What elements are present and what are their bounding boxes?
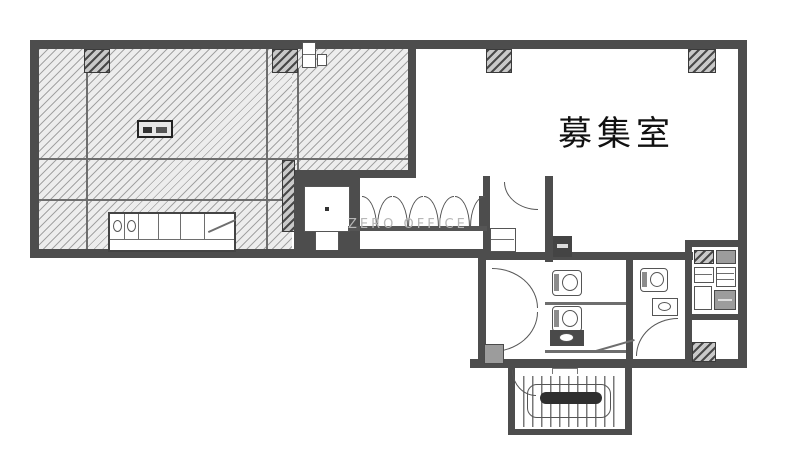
stair-wall-bottom <box>508 429 632 435</box>
sink-fixture-wc <box>652 298 678 316</box>
counter-div-1 <box>124 214 125 239</box>
plan-label-box <box>137 120 173 138</box>
floor-plan: 募集室 ZERO OFFICE <box>0 0 787 457</box>
wall-stall-divider <box>626 258 633 360</box>
partition-line-h2 <box>39 199 292 201</box>
wall-block-top <box>478 252 693 260</box>
column-3 <box>486 49 512 73</box>
sink-knob-2 <box>127 220 136 232</box>
sink-knob-1 <box>113 220 122 232</box>
toilet-fixture-1 <box>552 270 582 296</box>
pipe-space-top-small <box>317 54 327 66</box>
elevator-door <box>315 232 339 250</box>
wall-stall-bottom <box>545 350 626 353</box>
kitchenette-box-3 <box>694 267 714 283</box>
stair-wall-right <box>625 368 632 434</box>
counter-div-3 <box>158 214 159 239</box>
wall-room2-right <box>545 176 553 262</box>
column-2 <box>272 49 298 73</box>
door-swing-room2 <box>504 182 538 210</box>
partition-line-v3 <box>297 68 299 170</box>
wall-right <box>738 40 747 368</box>
counter-div-5 <box>204 214 205 239</box>
label-mark-1 <box>143 127 152 133</box>
counter-unit <box>108 212 236 252</box>
column-4 <box>688 49 716 73</box>
wall-kitchenette-left <box>685 240 692 362</box>
counter-shelf-line <box>110 239 234 240</box>
kitchenette-box-2 <box>716 250 736 264</box>
partition-line-h1 <box>39 158 408 160</box>
wall-top <box>30 40 747 49</box>
pipe-space-line <box>303 54 315 55</box>
door-swing-vestibule-1 <box>492 268 538 308</box>
wall-bottom-left <box>30 249 490 258</box>
sink-bowl-wc <box>658 302 671 311</box>
toilet-bowl-3 <box>650 272 664 287</box>
wall-left <box>30 40 39 258</box>
column-1 <box>84 49 110 73</box>
toilet-fixture-2 <box>552 306 582 332</box>
door-arch-4-right <box>470 196 485 227</box>
counter-div-2 <box>138 214 139 239</box>
watermark: ZERO OFFICE <box>348 217 468 232</box>
kitchenette-box-6 <box>714 290 736 310</box>
toilet-tank-3 <box>642 272 647 287</box>
wash-basin-unit <box>550 330 584 346</box>
elevator-cab <box>304 186 350 232</box>
service-box-stair-left <box>484 344 504 364</box>
toilet-bowl-1 <box>562 274 578 291</box>
elevator-dot <box>325 207 329 211</box>
counter-div-4 <box>180 214 181 239</box>
stair-handrail <box>540 392 602 404</box>
counter-diagonal <box>208 219 236 233</box>
duct-box-slot <box>557 244 568 248</box>
kitchenette-box-3-line <box>695 274 712 275</box>
vacant-room-label: 募集室 <box>558 106 675 155</box>
water-heater-unit <box>490 228 516 252</box>
door-swing-wc <box>636 318 678 356</box>
kitchenette-box-5 <box>694 286 712 310</box>
kitchenette-box-4 <box>716 267 736 287</box>
wall-divider-vertical <box>408 40 416 178</box>
wall-stall-partition <box>545 302 626 305</box>
partition-line-v2 <box>266 49 268 249</box>
pipe-space-top <box>302 42 316 68</box>
toilet-tank-2 <box>554 310 559 327</box>
kitchenette-box-4-line2 <box>717 279 734 280</box>
toilet-bowl-2 <box>562 310 578 327</box>
wall-kitchenette-bottom <box>685 314 739 320</box>
label-mark-2 <box>156 127 167 133</box>
partition-line-v1 <box>86 49 88 249</box>
column-bottom-right <box>692 342 716 362</box>
duct-box <box>553 236 572 257</box>
toilet-fixture-3 <box>640 268 668 292</box>
toilet-tank-1 <box>554 274 559 291</box>
wash-basin-bowl <box>559 333 574 342</box>
water-heater-line <box>491 239 514 240</box>
kitchenette-box-1 <box>694 250 714 264</box>
kitchenette-box-4-line1 <box>717 273 734 274</box>
kitchenette-box-6-line <box>718 299 732 301</box>
wall-kitchenette-top <box>692 240 739 247</box>
